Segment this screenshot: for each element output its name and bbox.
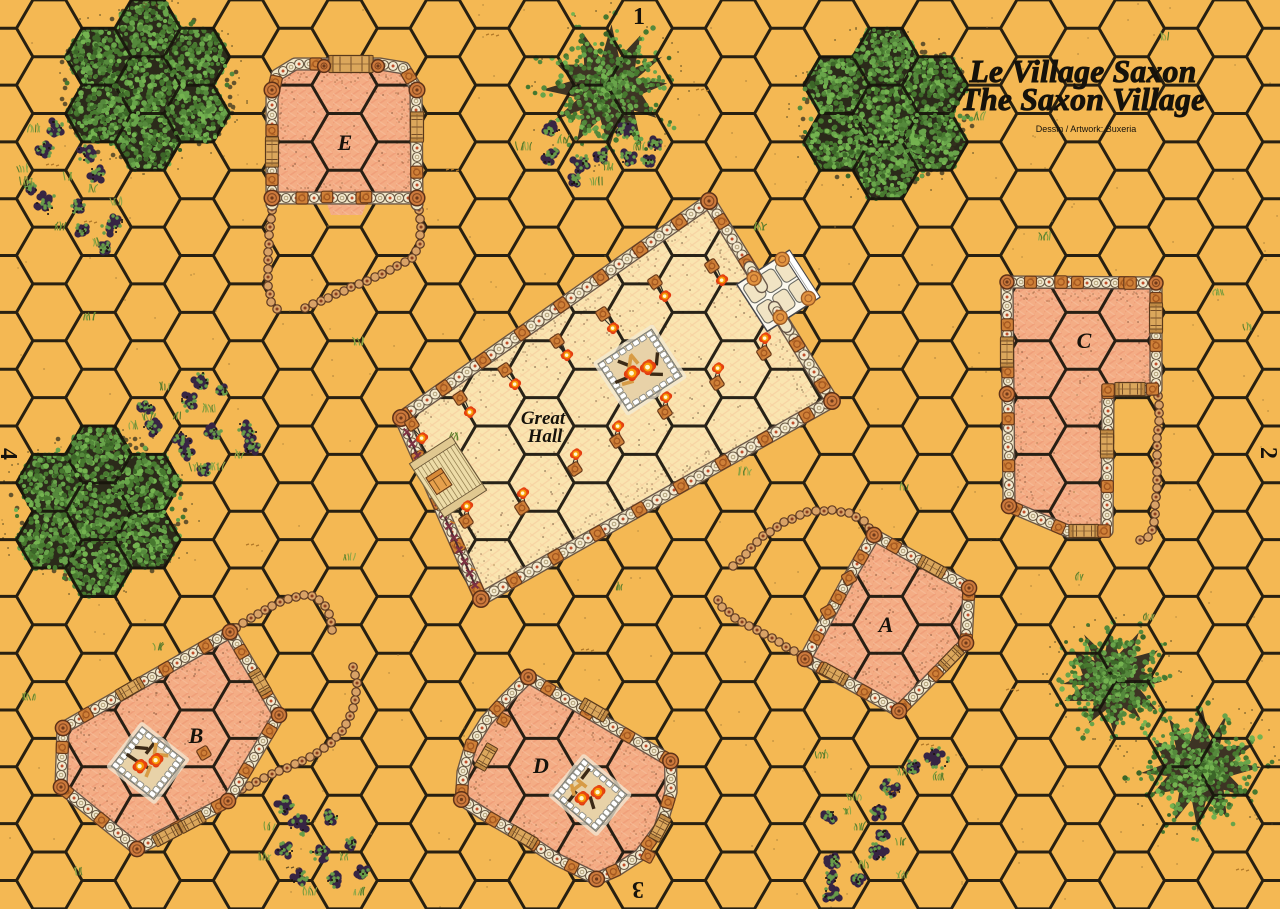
svg-text:4: 4	[0, 448, 21, 460]
svg-text:Dessin / Artwork: Buxeria: Dessin / Artwork: Buxeria	[1036, 124, 1137, 134]
svg-text:B: B	[188, 723, 204, 748]
svg-text:Hall: Hall	[527, 426, 564, 447]
svg-text:C: C	[1077, 328, 1092, 353]
svg-text:D: D	[532, 753, 549, 778]
svg-text:A: A	[877, 612, 894, 637]
svg-text:The Saxon Village: The Saxon Village	[961, 82, 1206, 117]
svg-text:E: E	[337, 130, 353, 155]
svg-text:1: 1	[633, 4, 645, 30]
svg-text:3: 3	[632, 876, 644, 902]
svg-text:2: 2	[1255, 447, 1280, 459]
